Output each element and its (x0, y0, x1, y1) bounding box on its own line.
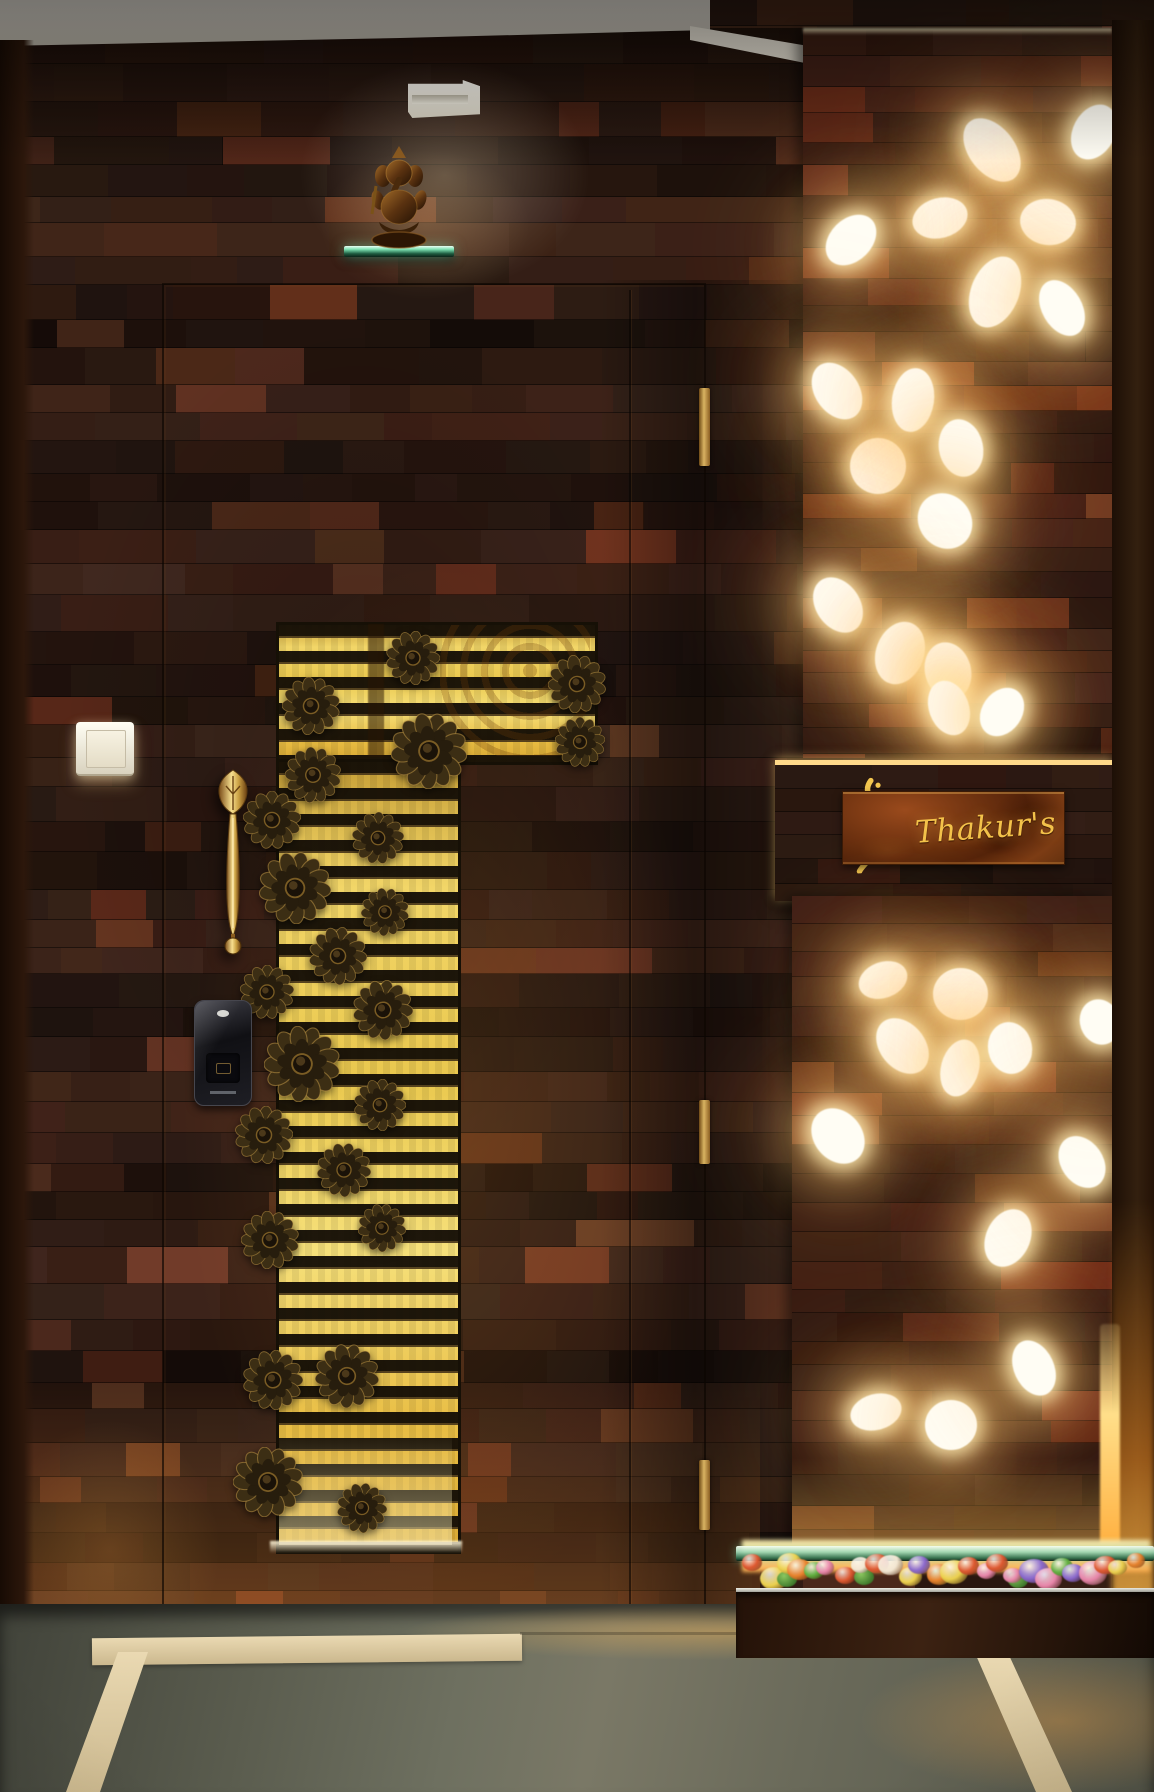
sunflower-medallion (309, 927, 367, 985)
nameplate-board: Thakur's (775, 760, 1112, 901)
doorbell-switch (76, 722, 134, 776)
wood-plank (626, 197, 710, 223)
wood-plank (1054, 463, 1112, 495)
wood-plank (879, 1116, 990, 1145)
wood-plank (1077, 896, 1112, 924)
wood-plank (1053, 924, 1112, 953)
wood-plank (883, 1443, 944, 1475)
wood-plank (223, 137, 332, 165)
planter-flower (1108, 1560, 1127, 1576)
wood-plank (803, 56, 891, 87)
sunflower-medallion (353, 980, 413, 1040)
wood-plank (958, 629, 1068, 651)
wood-plank (711, 725, 783, 758)
wood-plank (792, 1037, 869, 1063)
backlit-jali-panel-upper (803, 30, 1112, 758)
wood-plank (946, 1290, 996, 1314)
wood-plank (1094, 859, 1112, 884)
planter-flowers (738, 1548, 1152, 1590)
wood-plank (909, 1342, 1005, 1365)
sunflower-medallion (235, 1106, 293, 1164)
wood-plank (803, 548, 862, 572)
wood-plank (792, 1421, 857, 1443)
wood-plank (845, 1290, 947, 1314)
wood-plank (890, 56, 982, 87)
wood-plank (1038, 952, 1112, 977)
sunflower-medallion (555, 717, 605, 767)
wood-plank (71, 1072, 131, 1102)
wood-plank (227, 64, 330, 102)
wood-plank (1103, 754, 1112, 758)
wood-plank (61, 948, 103, 974)
wood-plank (85, 348, 156, 385)
wood-plank (792, 1203, 892, 1232)
wood-plank (903, 1313, 999, 1341)
wood-plank (570, 165, 659, 197)
wood-plank (1009, 0, 1102, 26)
sunflower-medallion (358, 1204, 406, 1252)
wood-plank (187, 165, 245, 197)
wood-plank (177, 102, 262, 137)
wood-plank (981, 56, 1082, 87)
wood-plank (71, 1320, 134, 1350)
wood-plank (1097, 196, 1112, 219)
wood-plank (1027, 651, 1087, 673)
wood-plank (920, 165, 970, 196)
wood-plank (757, 0, 854, 26)
wood-plank (90, 474, 158, 502)
wood-plank (792, 1062, 835, 1092)
wood-plank (584, 64, 696, 102)
nameplate-plaque: Thakur's (842, 791, 1065, 865)
wood-plank (1001, 1262, 1112, 1290)
wood-plank (887, 924, 996, 953)
wood-plank (694, 64, 770, 102)
wood-plank (792, 1232, 902, 1262)
wood-plank (707, 285, 817, 320)
wood-plank (882, 896, 970, 924)
wood-plank (982, 494, 1087, 519)
wood-plank (272, 197, 326, 223)
wood-plank (599, 102, 662, 137)
entrance-foyer-scene: Thakur's (0, 0, 1154, 1792)
wood-plank (861, 548, 918, 572)
wood-plank (975, 1475, 1083, 1506)
wood-plank (1063, 1093, 1112, 1116)
wood-plank (884, 1174, 976, 1203)
wood-plank (54, 64, 124, 102)
lock-sheen (195, 1001, 251, 1105)
wood-plank (699, 1503, 777, 1533)
wood-plank (909, 1475, 976, 1506)
wood-plank (191, 257, 239, 286)
wood-plank (1090, 704, 1112, 728)
jali-shadow-column (368, 624, 384, 757)
wood-plank (792, 1174, 885, 1203)
wood-plank (742, 1220, 795, 1247)
wood-plank (244, 165, 328, 197)
wood-plank (803, 113, 874, 143)
wood-plank (92, 1383, 145, 1409)
sunflower-medallion (241, 1211, 299, 1269)
wood-plank (509, 223, 557, 257)
wood-plank (865, 754, 914, 758)
wood-plank (995, 754, 1104, 758)
wood-plank (890, 1145, 957, 1174)
door-groove (629, 290, 631, 1608)
wood-plank (874, 1506, 954, 1529)
wood-plank (966, 0, 1010, 26)
wood-plank (803, 143, 896, 165)
wood-plank (61, 595, 169, 632)
planter-box (736, 1592, 1154, 1658)
wood-plank (56, 1192, 153, 1220)
wood-plank (792, 1313, 838, 1341)
wood-plank (1014, 165, 1112, 196)
wood-plank (803, 728, 920, 754)
wood-plank (57, 320, 126, 348)
wood-plank (923, 332, 976, 362)
wood-plank (398, 257, 510, 286)
panel-lit-edge (803, 28, 1112, 35)
wood-plank (899, 306, 950, 332)
wood-plank (699, 1072, 795, 1102)
wood-plank (1012, 519, 1074, 548)
wood-plank (655, 223, 775, 257)
wood-plank (1006, 765, 1053, 789)
wood-plank (792, 1475, 910, 1506)
wood-plank (1007, 977, 1086, 1007)
left-wall-corner (0, 40, 34, 1612)
wood-plank (261, 102, 344, 137)
wood-plank (994, 924, 1054, 953)
wood-plank (717, 474, 796, 502)
wood-plank (75, 257, 192, 286)
wood-plank (1086, 494, 1112, 519)
wood-plank (976, 332, 1030, 362)
sunflower-medallion (243, 1350, 303, 1410)
wood-plank (1029, 332, 1087, 362)
oval-light-cutout (925, 1400, 977, 1450)
wood-plank (915, 87, 1034, 113)
wood-plank (872, 572, 991, 599)
wood-plank (1041, 572, 1112, 599)
door-hinge (699, 1100, 710, 1164)
wood-plank (837, 1313, 905, 1341)
wood-plank (775, 859, 819, 884)
planter-flower (742, 1554, 762, 1571)
wood-plank (1003, 411, 1058, 434)
wood-plank (803, 494, 912, 519)
sunflower-medallion (548, 655, 606, 713)
digital-door-lock (194, 1000, 252, 1106)
wood-plank (562, 197, 627, 223)
wood-plank (1052, 765, 1100, 789)
wood-plank (975, 1174, 1081, 1203)
wood-plank (969, 896, 1028, 924)
wood-plank (1027, 896, 1078, 924)
wood-plank (803, 754, 866, 758)
wood-plank (56, 1503, 108, 1533)
wood-plank (67, 1563, 115, 1591)
wood-plank (1103, 248, 1112, 279)
wood-plank (98, 102, 178, 137)
backlit-jali-panel-lower (792, 896, 1112, 1548)
wood-plank (682, 137, 777, 165)
wood-plank (1042, 1290, 1112, 1314)
wood-plank (51, 1164, 125, 1192)
wood-plank (217, 223, 331, 257)
wood-plank (47, 1247, 127, 1283)
wood-plank (556, 223, 656, 257)
wood-plank (715, 595, 789, 632)
wood-plank (96, 920, 155, 948)
sunflower-medallion (282, 677, 340, 735)
wood-plank (803, 165, 849, 196)
wood-plank (838, 1443, 884, 1475)
wood-plank (917, 548, 1029, 572)
doorbell-button (86, 730, 126, 768)
wood-plank (1044, 248, 1103, 279)
wood-plank (108, 165, 188, 197)
wood-plank (1077, 386, 1112, 412)
wood-plank (123, 64, 228, 102)
wood-plank (803, 332, 876, 362)
wood-plank (46, 632, 136, 665)
wood-plank (710, 974, 753, 1008)
wall-light-fixture (408, 80, 480, 118)
sunflower-medallion (386, 631, 440, 685)
wood-plank (994, 1093, 1064, 1116)
wood-plank (792, 1443, 839, 1475)
ganesha-statue (352, 142, 446, 252)
sunflower-medallion (391, 713, 467, 789)
wood-plank (865, 87, 916, 113)
sunflower-medallion (352, 812, 404, 864)
wood-plank (792, 896, 883, 924)
sunflower-medallion (337, 1483, 387, 1533)
wood-plank (686, 257, 750, 286)
wood-plank (54, 137, 170, 165)
wood-plank (1057, 411, 1112, 434)
sunflower-medallion (354, 1079, 406, 1131)
wood-plank (792, 1506, 875, 1529)
wood-plank (938, 765, 1006, 789)
wood-plank (56, 787, 168, 823)
sunflower-medallion (233, 1447, 303, 1517)
wood-plank (111, 197, 213, 223)
planter-flower (1127, 1553, 1146, 1568)
wood-plank (589, 137, 683, 165)
wood-plank (1087, 651, 1112, 673)
wood-plank (124, 1164, 168, 1192)
wood-plank (792, 952, 863, 977)
wood-plank (500, 64, 585, 102)
wood-plank (613, 257, 687, 286)
door-hinge (699, 1460, 710, 1530)
wood-plank (1073, 519, 1112, 548)
wood-plank (65, 1102, 172, 1132)
wood-plank (498, 137, 590, 165)
wood-plank (1056, 1062, 1112, 1092)
wood-plank (212, 197, 273, 223)
wood-plank (83, 1351, 164, 1384)
oval-light-cutout (933, 968, 988, 1020)
wood-plank (104, 223, 218, 257)
wood-plank (714, 1351, 790, 1384)
wood-plank (913, 754, 996, 758)
wood-plank (493, 197, 564, 223)
wood-plank (1099, 765, 1112, 789)
wood-plank (705, 102, 809, 137)
wood-plank (1082, 1232, 1112, 1262)
door-hinge (699, 388, 710, 466)
wood-plank (1010, 434, 1095, 463)
wood-plank (721, 564, 797, 595)
wood-plank (999, 1313, 1086, 1341)
grille-sill-highlight (270, 1541, 462, 1553)
sunflower-medallion (361, 888, 409, 936)
lit-panel-edge (1100, 1324, 1120, 1548)
wood-plank (81, 1477, 158, 1503)
floor-inlay-strip (92, 1634, 522, 1666)
wood-plank (1011, 463, 1054, 495)
wood-plank (76, 285, 128, 320)
wood-plank (803, 279, 869, 306)
wood-plank (792, 924, 888, 953)
wood-plank (792, 1342, 910, 1365)
wood-plank (919, 279, 976, 306)
wood-plank (834, 1062, 944, 1092)
wood-plank (792, 1365, 892, 1392)
wood-plank (705, 320, 790, 348)
wood-plank (955, 1145, 1055, 1174)
wood-plank (803, 519, 901, 548)
sunflower-medallion (317, 1143, 371, 1197)
wood-plank (853, 0, 967, 26)
wood-plank (509, 257, 615, 286)
wood-plank (91, 890, 148, 921)
wood-plank (990, 572, 1043, 599)
wood-plank (105, 822, 146, 852)
wood-plank (90, 1037, 148, 1072)
fixture-louver (412, 95, 468, 103)
sunflower-medallion (315, 1344, 379, 1408)
wood-plank (60, 1443, 127, 1477)
wood-plank (85, 1533, 145, 1563)
wood-plank (1069, 598, 1112, 628)
wood-plank (1086, 332, 1113, 362)
wood-plank (882, 1262, 1002, 1290)
wood-plank (40, 197, 112, 223)
wood-plank (1075, 673, 1112, 704)
wood-plank (848, 165, 922, 196)
wood-plank (875, 332, 925, 362)
wood-plank (1028, 362, 1112, 386)
wood-plank (882, 1093, 995, 1116)
wood-plank (56, 1133, 114, 1164)
wood-plank (237, 257, 284, 286)
sunflower-medallion (264, 1026, 340, 1102)
wood-plank (1019, 704, 1090, 728)
wood-plank (803, 704, 870, 728)
wood-plank (716, 348, 808, 385)
wood-plank (1094, 434, 1112, 463)
wood-plank (967, 598, 1070, 628)
wood-plank (661, 102, 707, 137)
wood-plank (1028, 548, 1112, 572)
wood-plank (803, 306, 900, 332)
door-handle (196, 768, 270, 964)
wood-plank (792, 1290, 846, 1314)
wood-plank (169, 137, 224, 165)
wood-plank (1081, 56, 1112, 87)
wood-plank (995, 1290, 1043, 1314)
wood-plank (792, 1262, 883, 1290)
wood-plank (954, 1506, 1057, 1529)
wood-plank (744, 948, 790, 974)
oval-light-cutout (850, 438, 906, 494)
wood-plank (48, 890, 91, 921)
wood-plank (657, 165, 767, 197)
wood-plank (283, 257, 399, 286)
wood-plank (803, 87, 866, 113)
wood-plank (891, 1365, 990, 1392)
wood-plank (559, 102, 600, 137)
wood-plank (71, 665, 157, 697)
wood-plank (1101, 728, 1112, 754)
wood-plank (974, 362, 1029, 386)
wood-plank (1067, 629, 1112, 651)
wood-plank (964, 386, 1077, 412)
wood-plank (40, 1477, 82, 1503)
wood-plank (868, 279, 920, 306)
wood-plank (1085, 812, 1112, 835)
planter-flower (816, 1560, 834, 1575)
wood-plank (467, 165, 570, 197)
wood-plank (1098, 219, 1112, 248)
